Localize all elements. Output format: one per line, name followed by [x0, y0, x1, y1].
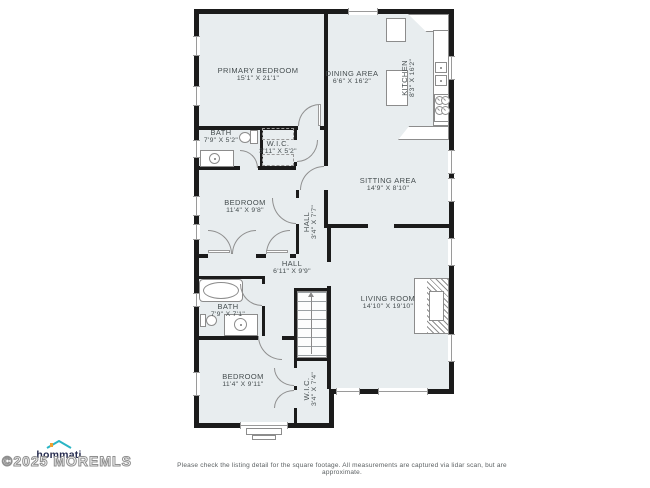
burner-icon	[441, 106, 450, 115]
wall-living-west-b	[327, 286, 331, 389]
sink-icon	[435, 75, 447, 86]
window	[378, 388, 428, 395]
patio-door	[336, 388, 360, 395]
door-leaf	[208, 250, 230, 253]
room-dims: 6'11" X 9'9"	[237, 268, 347, 276]
wall-bedroom3-top-a	[196, 336, 258, 340]
window	[193, 86, 200, 106]
room-name: KITCHEN	[400, 38, 409, 118]
room-label-hall-2: HALL 6'11" X 9'9"	[237, 259, 347, 277]
wall-living-west-a	[327, 224, 331, 262]
window	[348, 8, 378, 15]
room-dims: 3'4" X 7'7"	[311, 182, 319, 262]
room-dims: 3'4" X 7'4"	[311, 349, 319, 429]
room-label-hall-1: HALL 3'4" X 7'7"	[302, 182, 320, 262]
wall-bath2-east-a	[262, 276, 265, 284]
room-label-kitchen: KITCHEN 8'3" X 16'2"	[400, 38, 418, 118]
window	[448, 334, 455, 362]
wall-primary-bath-stub	[320, 126, 328, 130]
stair-direction-line	[311, 296, 312, 354]
room-name: BEDROOM	[188, 372, 298, 381]
entry-step	[246, 428, 282, 435]
room-label-bedroom-3: BEDROOM 11'4" X 9'11"	[188, 372, 298, 390]
window	[448, 178, 455, 202]
door-leaf	[318, 104, 321, 126]
room-dims: 7'9" X 7'1"	[173, 311, 283, 319]
room-name: HALL	[237, 259, 347, 268]
room-label-wic-1: W.I.C. 3'11" X 5'2"	[223, 139, 333, 157]
wall-sitting-living-b	[394, 224, 452, 228]
room-label-living-room: LIVING ROOM 14'10" X 19'10"	[333, 294, 443, 312]
room-name: BATH	[173, 302, 283, 311]
room-name: HALL	[302, 182, 311, 262]
wall-sitting-living-a	[327, 224, 368, 228]
sink-icon	[209, 153, 220, 164]
room-dims: 6'6" X 16'2"	[297, 78, 407, 86]
room-dims: 14'10" X 19'10"	[333, 303, 443, 311]
disclaimer-text: Please check the listing detail for the …	[168, 462, 516, 476]
room-dims: 3'11" X 5'2"	[223, 148, 333, 156]
room-name: DINING AREA	[297, 69, 407, 78]
wall-wic1-east-b	[294, 162, 297, 166]
room-name: W.I.C.	[223, 139, 333, 148]
wall-bedroom2-bottom-a	[196, 254, 208, 258]
wall-exterior-left	[194, 9, 199, 428]
wall-connector	[329, 389, 334, 428]
window	[193, 224, 200, 240]
stair-arrow-icon	[308, 292, 314, 297]
window	[448, 238, 455, 266]
burner-icon	[441, 96, 450, 105]
sink-icon	[234, 318, 247, 331]
wall-wic2-west-a	[294, 358, 297, 368]
wall-bedroom2-bottom-b	[256, 254, 266, 258]
wall-bedroom2-bottom-c	[290, 254, 296, 258]
room-dims: 11'4" X 9'11"	[188, 381, 298, 389]
room-name: W.I.C.	[302, 349, 311, 429]
room-label-dining-area: DINING AREA 6'6" X 16'2"	[297, 69, 407, 87]
window	[448, 56, 455, 80]
wall-hall-sitting	[324, 190, 328, 228]
room-label-sitting-area: SITTING AREA 14'9" X 8'10"	[333, 176, 443, 194]
room-name: BEDROOM	[190, 198, 300, 207]
room-name: SITTING AREA	[333, 176, 443, 185]
wall-bedroom2-hall-b	[296, 224, 299, 254]
room-label-wic-2: W.I.C. 3'4" X 7'4"	[302, 349, 320, 429]
room-dims: 11'4" X 9'8"	[190, 207, 300, 215]
house-roof-icon	[46, 440, 72, 449]
wall-wic1-bottom	[258, 166, 296, 170]
sink-icon	[435, 62, 447, 73]
bathtub-icon	[203, 282, 239, 299]
window	[193, 36, 200, 56]
floor-plan-page: PRIMARY BEDROOM 15'1" X 21'1" DINING ARE…	[0, 0, 650, 488]
entry-step	[252, 435, 276, 440]
room-name: BATH	[166, 128, 276, 137]
room-dims: 14'9" X 8'10"	[333, 185, 443, 193]
wall-bedroom2-hall-a	[296, 190, 299, 198]
wall-wic2-west-c	[294, 408, 297, 426]
room-label-bath-2: BATH 7'9" X 7'1"	[173, 302, 283, 320]
wall-wic1-east-a	[294, 126, 297, 140]
window	[448, 150, 455, 174]
room-dims: 8'3" X 16'2"	[409, 38, 417, 118]
room-label-bedroom-2: BEDROOM 11'4" X 9'8"	[190, 198, 300, 216]
door-leaf	[266, 250, 288, 253]
room-name: LIVING ROOM	[333, 294, 443, 303]
mls-watermark: ©2025 MOREMLS	[2, 453, 132, 469]
